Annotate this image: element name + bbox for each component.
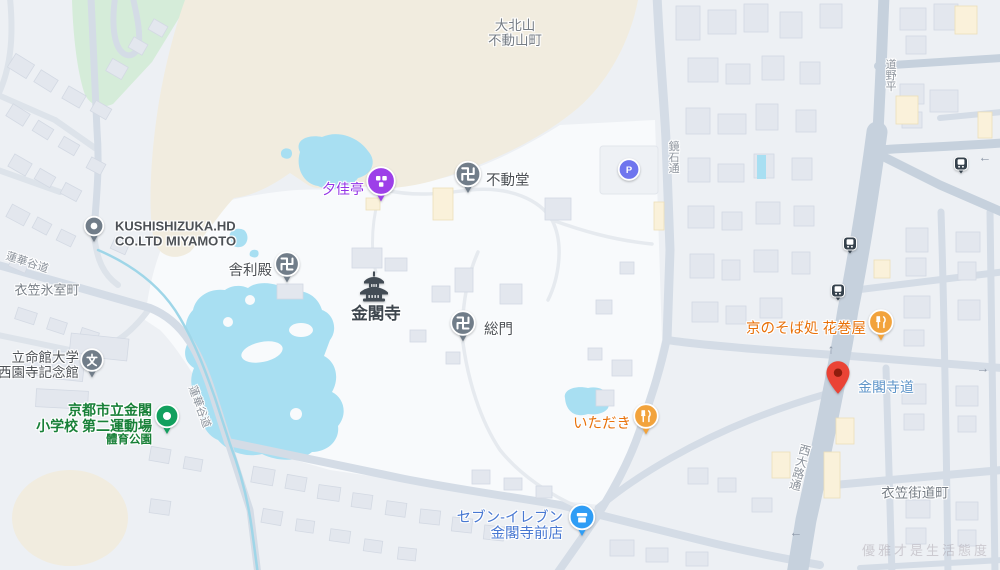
marker-ritsumeikan-school[interactable] bbox=[80, 348, 104, 384]
label-road-hirano: 道野平 bbox=[884, 59, 896, 92]
label-line: セブン-イレブン bbox=[457, 510, 563, 526]
bus-stop-icon[interactable] bbox=[954, 157, 968, 180]
label-line: 夕佳亭 bbox=[322, 182, 364, 198]
label-kushishizuka[interactable]: KUSHISHIZUKA.HDCO.LTD MIYAMOTO bbox=[115, 219, 236, 248]
one-way-arrow-icon: → bbox=[977, 361, 990, 376]
one-way-arrow-icon: ↑ bbox=[828, 342, 835, 357]
bus-stop-icon[interactable] bbox=[843, 237, 857, 260]
marker-seven-eleven-store[interactable] bbox=[569, 504, 596, 543]
label-line: 金閣寺道 bbox=[858, 380, 914, 396]
label-kinkakuji[interactable]: 金閣寺 bbox=[351, 305, 401, 323]
bus-stop-icon[interactable] bbox=[831, 284, 845, 307]
label-line: 京都市立金閣 bbox=[36, 403, 152, 419]
marker-kushishizuka-place[interactable] bbox=[84, 216, 105, 249]
label-line: 舎利殿 bbox=[229, 263, 273, 279]
label-line: 蓮華谷道 bbox=[4, 250, 50, 275]
map-canvas[interactable]: 大北山不動山町衣笠氷室町衣笠街道町KUSHISHIZUKA.HDCO.LTD M… bbox=[0, 0, 1000, 570]
label-line: 道野平 bbox=[884, 59, 896, 92]
marker-hanamakiya-restaurant[interactable] bbox=[868, 309, 894, 347]
label-road-nishioji: 西大路通 bbox=[786, 442, 811, 492]
marker-yukatei-attraction[interactable] bbox=[366, 166, 396, 208]
label-line: 體育公園 bbox=[36, 434, 152, 447]
label-line: 鏡石通 bbox=[667, 141, 679, 174]
label-itadaki[interactable]: いただき bbox=[573, 416, 631, 432]
one-way-arrow-icon: ← bbox=[790, 525, 803, 540]
one-way-arrow-icon: ← bbox=[979, 150, 992, 165]
label-line: 西大路通 bbox=[786, 442, 811, 492]
kinkakuji-pagoda-icon[interactable] bbox=[356, 272, 392, 307]
label-line: 蓮華谷道 bbox=[186, 384, 213, 430]
label-road-rengedani-2: 蓮華谷道 bbox=[186, 384, 213, 430]
marker-parking[interactable]: P bbox=[618, 158, 641, 186]
svg-text:P: P bbox=[626, 164, 632, 175]
label-line: 総門 bbox=[484, 322, 513, 338]
label-line: 衣笠街道町 bbox=[881, 485, 949, 500]
marker-itadaki-restaurant[interactable] bbox=[633, 403, 659, 441]
label-somon[interactable]: 総門 bbox=[484, 322, 513, 338]
label-line: 衣笠氷室町 bbox=[14, 284, 79, 299]
marker-kinkaku-elementary-park[interactable] bbox=[155, 404, 180, 441]
map-overlay: 大北山不動山町衣笠氷室町衣笠街道町KUSHISHIZUKA.HDCO.LTD M… bbox=[0, 0, 1000, 570]
label-hanamakiya[interactable]: 京のそば処 花巻屋 bbox=[746, 321, 866, 337]
label-ritsumeikan[interactable]: 立命館大学西園寺記念館 bbox=[0, 350, 79, 380]
label-line: 不動堂 bbox=[486, 173, 530, 189]
label-line: 金閣寺前店 bbox=[457, 526, 563, 542]
label-road-rengedani-1: 蓮華谷道 bbox=[4, 250, 50, 275]
label-daikitayama-fudosancho: 大北山不動山町 bbox=[488, 18, 542, 48]
label-yukatei[interactable]: 夕佳亭 bbox=[322, 182, 364, 198]
label-line: CO.LTD MIYAMOTO bbox=[115, 234, 236, 249]
label-kinugasa-himurocho: 衣笠氷室町 bbox=[14, 284, 79, 299]
label-line: 京のそば処 花巻屋 bbox=[746, 321, 866, 337]
label-kinkaku-elementary[interactable]: 京都市立金閣小学校 第二運動場體育公園 bbox=[36, 403, 152, 447]
marker-somon-temple[interactable] bbox=[450, 310, 476, 348]
label-line: 西園寺記念館 bbox=[0, 365, 79, 380]
label-line: KUSHISHIZUKA.HD bbox=[115, 219, 236, 234]
destination-pin[interactable] bbox=[827, 361, 850, 399]
label-road-kagamiishi: 鏡石通 bbox=[667, 141, 679, 174]
label-kinkakujimichi-stop[interactable]: 金閣寺道 bbox=[858, 380, 914, 396]
label-line: 立命館大学 bbox=[0, 350, 79, 365]
marker-fudodo-temple[interactable] bbox=[455, 161, 482, 200]
label-line: 金閣寺 bbox=[351, 305, 401, 323]
label-line: 大北山 bbox=[488, 18, 542, 33]
label-line: いただき bbox=[573, 416, 631, 432]
label-kinugasa-kaidocho: 衣笠街道町 bbox=[881, 485, 949, 500]
label-shariden[interactable]: 舎利殿 bbox=[229, 263, 273, 279]
label-fudodo[interactable]: 不動堂 bbox=[486, 173, 530, 189]
label-line: 小学校 第二運動場 bbox=[36, 419, 152, 435]
watermark: 優雅才是生活態度 bbox=[862, 540, 1000, 559]
marker-shariden-temple[interactable] bbox=[274, 251, 300, 289]
label-line: 不動山町 bbox=[488, 33, 542, 48]
label-seven-eleven[interactable]: セブン-イレブン金閣寺前店 bbox=[457, 510, 563, 542]
